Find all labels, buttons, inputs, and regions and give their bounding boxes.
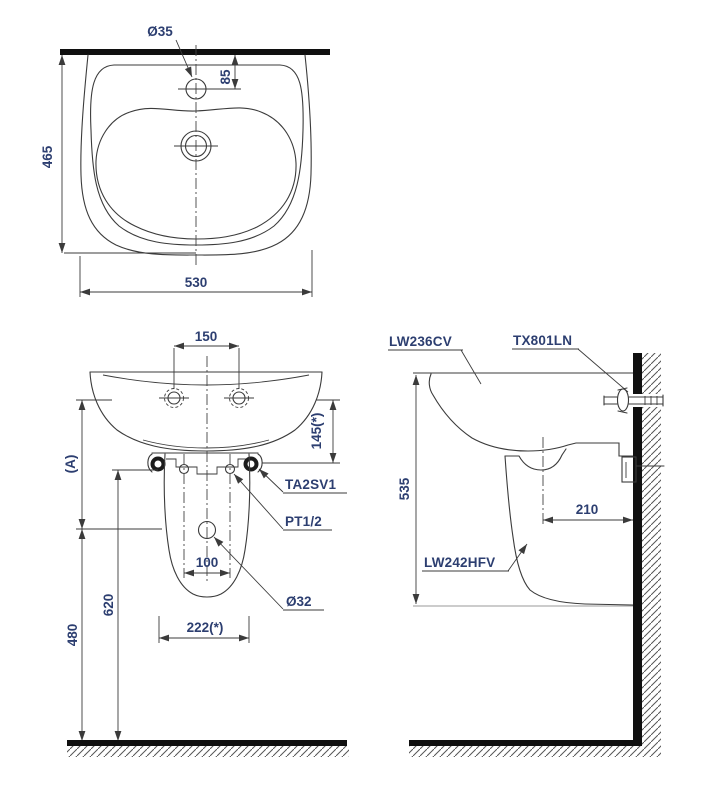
- dim-text-height: 535: [397, 477, 412, 500]
- technical-drawing: Ø35 85 465 530: [0, 0, 702, 804]
- label-basin-model: LW236CV: [389, 334, 452, 349]
- side-pedestal-profile: [505, 456, 633, 605]
- dim-text-supply-height: 620: [101, 594, 116, 617]
- dim-text-hole-diameter: Ø35: [147, 24, 173, 39]
- leader-faucet-hole: [176, 40, 192, 77]
- side-pedestal-top-dip: [505, 449, 566, 470]
- front-view: 150 145(*) (A) 620 480 100 222(*) Ø32 TA…: [63, 329, 349, 757]
- side-view: LW236CV TX801LN LW242HFV 535 210: [388, 333, 664, 757]
- front-faucet-holes: [159, 389, 254, 408]
- front-floor-hatch: [67, 746, 349, 757]
- counter-wall-bar: [60, 49, 330, 55]
- side-basin-profile: [429, 374, 633, 456]
- front-floor-bar: [67, 740, 347, 746]
- bracket-left-ear: [153, 459, 164, 470]
- front-view-dimension-lines: [82, 346, 333, 741]
- dim-text-faucet-spacing: 150: [195, 329, 218, 344]
- front-view-centerlines: [184, 356, 230, 582]
- dim-text-base-width: 222(*): [187, 620, 224, 635]
- bracket-right-ear: [246, 459, 257, 470]
- side-view-leaders: [388, 349, 628, 571]
- dim-text-drain-height: 480: [65, 624, 80, 647]
- dim-text-hole-offset: 85: [218, 69, 233, 85]
- side-floor-hatch: [409, 746, 661, 757]
- dim-text-bolt-spacing: 100: [196, 555, 219, 570]
- dim-text-ref-a: (A): [63, 455, 78, 474]
- dim-text-depth: 465: [40, 145, 55, 168]
- side-floor-bar: [409, 740, 642, 746]
- label-faucet-model: TX801LN: [513, 333, 572, 348]
- top-view: Ø35 85 465 530: [40, 24, 330, 297]
- front-basin-outline: [90, 372, 322, 451]
- wall-hatch: [642, 353, 661, 746]
- wall-bar: [633, 353, 642, 746]
- label-supply: PT1/2: [285, 514, 322, 529]
- dim-text-rim-to-bolt: 145(*): [309, 413, 324, 450]
- dim-text-width: 530: [185, 275, 208, 290]
- drawing-sheet: Ø35 85 465 530: [0, 0, 702, 804]
- label-pedestal-model: LW242HFV: [424, 555, 495, 570]
- dim-text-drain-diameter: Ø32: [286, 594, 312, 609]
- label-bracket: TA2SV1: [285, 477, 337, 492]
- dim-text-drain-offset: 210: [576, 502, 599, 517]
